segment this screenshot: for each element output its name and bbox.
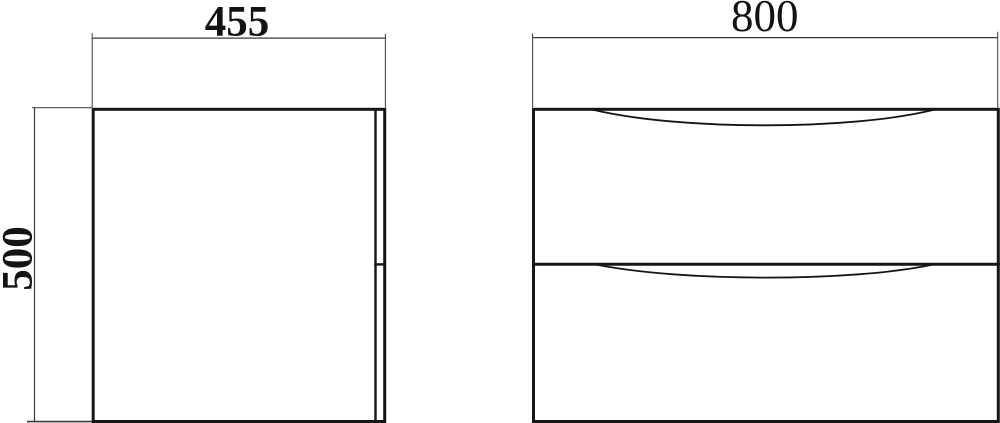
svg-text:800: 800 xyxy=(731,0,799,41)
svg-text:500: 500 xyxy=(0,226,42,291)
svg-text:455: 455 xyxy=(205,0,270,45)
